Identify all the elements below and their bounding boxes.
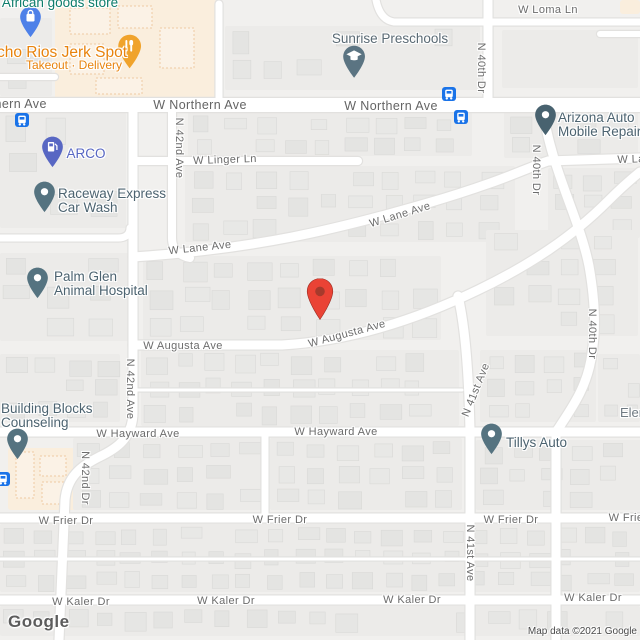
street-label: N 42nd Dr xyxy=(79,451,91,505)
poi-label-arizona-auto-mobile-repair[interactable]: Mobile Repair xyxy=(558,124,640,139)
street-label: N 41st Ave xyxy=(460,361,492,418)
poi-label-african-goods-store[interactable]: African goods store xyxy=(2,0,118,10)
cap-pin-icon[interactable] xyxy=(342,45,366,79)
generic-poi-pin-icon[interactable] xyxy=(534,104,557,136)
street-label: N 40th Dr xyxy=(475,43,487,94)
poi-label-tillys-auto[interactable]: Tillys Auto xyxy=(506,435,567,450)
street-label: N 42nd Ave xyxy=(173,118,185,179)
street-label: W Lane Ave xyxy=(168,239,232,258)
generic-poi-pin-icon[interactable] xyxy=(6,428,29,460)
street-label: W Kaler Dr xyxy=(564,592,622,604)
generic-poi-pin-icon[interactable] xyxy=(26,267,49,299)
generic-poi-pin-icon[interactable] xyxy=(33,181,56,213)
map-labels-layer: W Loma LnW Northern AveW Northern AveW N… xyxy=(0,0,640,640)
street-label: W Kaler Dr xyxy=(52,596,110,608)
street-label: N 41st Ave xyxy=(464,525,476,582)
street-label: W Lane Ave xyxy=(617,152,640,166)
street-label: W Kaler Dr xyxy=(383,594,441,606)
transit-station-icon[interactable] xyxy=(0,472,10,491)
street-label: W Frier Dr xyxy=(253,514,308,526)
street-label: W Northern Ave xyxy=(344,99,438,113)
street-label: W Frier Dr xyxy=(39,515,94,527)
bag-pin-icon[interactable] xyxy=(19,6,42,38)
street-label: W Frier Dr xyxy=(484,514,539,526)
google-logo[interactable]: Google xyxy=(8,612,70,632)
street-label: W Augusta Ave xyxy=(143,340,223,352)
street-label: N 42nd Ave xyxy=(124,359,136,420)
transit-station-icon[interactable] xyxy=(454,110,468,129)
street-label: W Northern Ave xyxy=(0,97,47,111)
poi-label-palm-glen-animal-hospital[interactable]: Animal Hospital xyxy=(54,283,148,298)
street-label: W Lane Ave xyxy=(368,200,432,230)
poi-label-sunrise-preschools[interactable]: Sunrise Preschools xyxy=(332,31,448,46)
poi-label-building-blocks-counseling[interactable]: Counseling xyxy=(1,415,69,430)
street-label: N 40th Dr xyxy=(530,145,542,196)
poi-label-raceway-express-car-wash[interactable]: Car Wash xyxy=(58,200,118,215)
gas-pin-icon[interactable] xyxy=(41,136,64,168)
transit-station-icon[interactable] xyxy=(15,113,29,132)
street-label: W Hayward Ave xyxy=(96,428,179,440)
poi-label-elementary-clipped[interactable]: Elementary xyxy=(620,405,640,420)
poi-sublabel-ocho-rios-jerk-spot[interactable]: Takeout · Delivery xyxy=(26,58,122,72)
street-label: N 40th Dr xyxy=(586,309,598,360)
poi-label-arco[interactable]: ARCO xyxy=(66,146,105,161)
map-attribution: Map data ©2021 Google xyxy=(528,626,637,637)
generic-poi-pin-icon[interactable] xyxy=(480,423,503,455)
map-canvas[interactable]: W Loma LnW Northern AveW Northern AveW N… xyxy=(0,0,640,640)
street-label: W Frier Dr xyxy=(609,512,640,524)
red-location-marker[interactable] xyxy=(306,278,334,326)
street-label: W Northern Ave xyxy=(153,98,247,112)
street-label: W Hayward Ave xyxy=(294,426,377,438)
street-label: W Kaler Dr xyxy=(197,595,255,607)
street-label: W Linger Ln xyxy=(193,153,257,167)
street-label: W Loma Ln xyxy=(518,4,578,16)
transit-station-icon[interactable] xyxy=(442,87,456,106)
